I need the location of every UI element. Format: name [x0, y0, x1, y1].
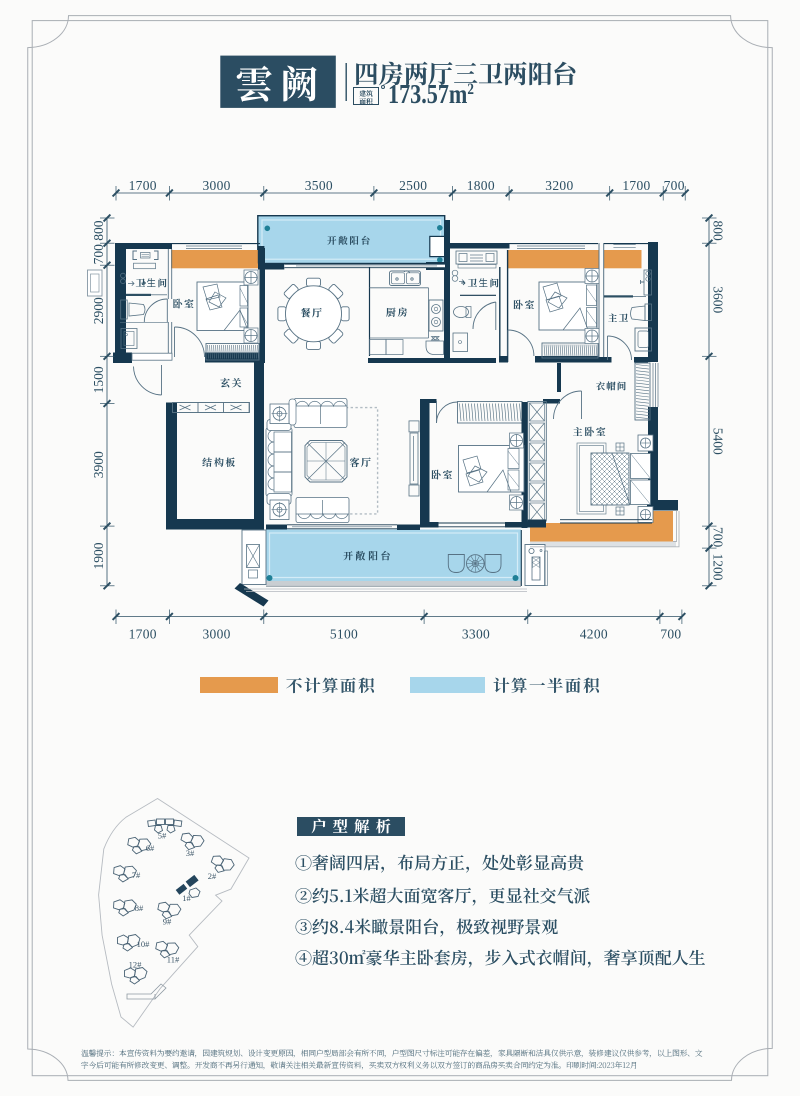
svg-text:4200: 4200	[580, 627, 608, 642]
svg-text:10#: 10#	[137, 939, 151, 949]
svg-text:开敞阳台: 开敞阳台	[327, 233, 372, 247]
svg-text:卧室: 卧室	[513, 297, 536, 312]
svg-text:5400: 5400	[711, 428, 726, 455]
svg-text:餐厅: 餐厅	[301, 305, 324, 320]
svg-text:5#: 5#	[158, 831, 167, 841]
svg-text:8#: 8#	[135, 903, 144, 913]
svg-text:7#: 7#	[132, 870, 141, 880]
svg-text:不计算面积: 不计算面积	[286, 673, 376, 697]
svg-text:3000: 3000	[202, 627, 230, 642]
svg-text:1700: 1700	[129, 627, 157, 642]
svg-text:主卧室: 主卧室	[572, 424, 608, 439]
svg-text:开敞阳台: 开敞阳台	[343, 548, 393, 563]
svg-text:1700: 1700	[622, 178, 650, 193]
svg-text:玄关: 玄关	[220, 375, 243, 390]
svg-text:1200: 1200	[711, 553, 726, 580]
svg-text:12#: 12#	[129, 960, 143, 970]
svg-text:1700: 1700	[129, 178, 157, 193]
svg-text:3300: 3300	[462, 627, 490, 642]
svg-text:客厅: 客厅	[350, 454, 373, 469]
svg-text:9#: 9#	[163, 917, 172, 927]
svg-text:2500: 2500	[399, 178, 427, 193]
svg-text:700: 700	[711, 527, 726, 548]
svg-text:卫生间: 卫生间	[135, 276, 168, 290]
svg-text:800: 800	[91, 220, 106, 241]
svg-text:主卫: 主卫	[608, 311, 629, 325]
svg-text:1#: 1#	[182, 893, 191, 903]
svg-text:2900: 2900	[91, 297, 106, 324]
svg-text:3#: 3#	[186, 848, 195, 858]
svg-text:11#: 11#	[167, 955, 180, 965]
svg-text:计算一半面积: 计算一半面积	[493, 673, 601, 697]
svg-text:厨房: 厨房	[385, 304, 409, 319]
svg-text:衣帽间: 衣帽间	[596, 379, 628, 393]
svg-text:1900: 1900	[91, 542, 106, 569]
svg-text:800: 800	[711, 220, 726, 241]
svg-text:结构板: 结构板	[202, 454, 237, 469]
svg-text:卫生间: 卫生间	[467, 276, 500, 290]
svg-text:5100: 5100	[330, 627, 358, 642]
svg-text:3500: 3500	[305, 178, 333, 193]
svg-text:3000: 3000	[202, 178, 230, 193]
svg-text:700: 700	[660, 627, 681, 642]
svg-text:1500: 1500	[91, 366, 106, 393]
svg-text:6#: 6#	[146, 843, 155, 853]
svg-text:3600: 3600	[711, 286, 726, 313]
svg-text:卧室: 卧室	[431, 467, 454, 482]
svg-text:700: 700	[664, 178, 685, 193]
svg-text:雲阙: 雲阙	[235, 54, 326, 109]
svg-text:3200: 3200	[545, 178, 573, 193]
svg-text:2#: 2#	[208, 871, 217, 881]
svg-text:3900: 3900	[91, 451, 106, 478]
svg-text:卧室: 卧室	[173, 296, 196, 311]
svg-text:700: 700	[91, 244, 106, 265]
svg-text:1800: 1800	[467, 178, 495, 193]
